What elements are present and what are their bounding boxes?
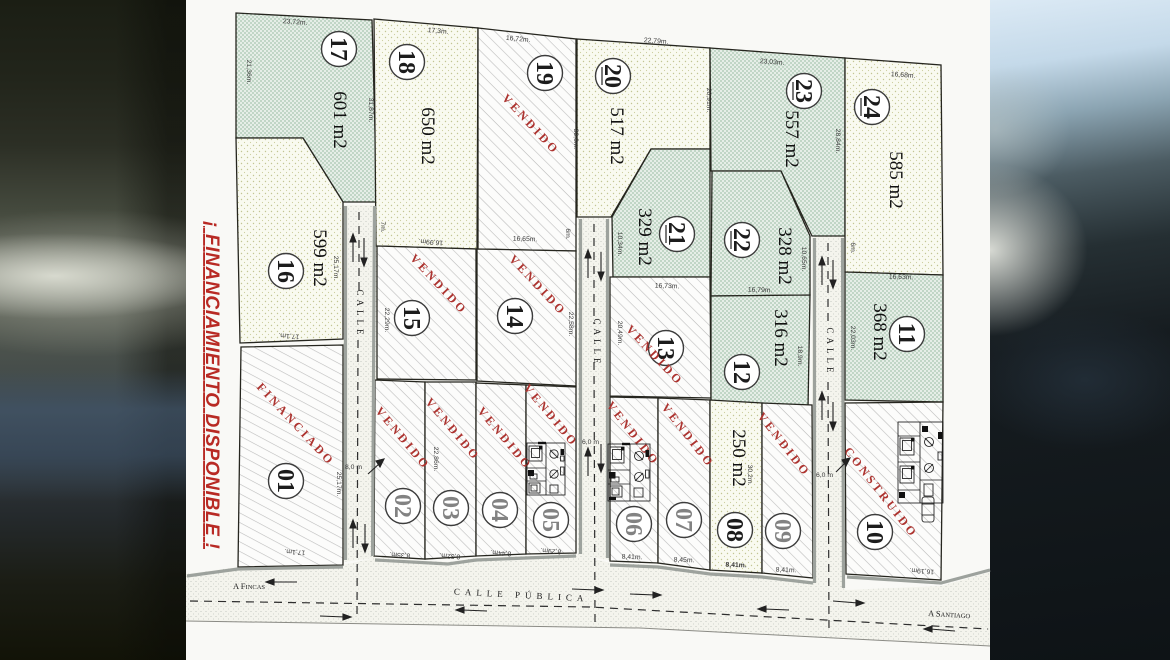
svg-text:22,29m.: 22,29m.: [383, 308, 390, 333]
svg-text:8,41m.: 8,41m.: [622, 554, 643, 562]
svg-text:17,1m.: 17,1m.: [284, 547, 305, 555]
svg-text:11: 11: [893, 323, 919, 346]
svg-text:20,49m.: 20,49m.: [616, 321, 623, 346]
svg-text:316 m2: 316 m2: [770, 309, 791, 367]
svg-text:10: 10: [861, 520, 887, 544]
svg-text:7m.: 7m.: [379, 221, 386, 232]
svg-text:10,34m.: 10,34m.: [616, 232, 623, 257]
svg-text:25,17m.: 25,17m.: [332, 256, 339, 281]
svg-text:20,91m.: 20,91m.: [705, 88, 712, 113]
svg-text:16: 16: [272, 259, 298, 283]
svg-text:15: 15: [398, 306, 424, 330]
svg-text:¡ FINANCIAMIENTO DISPONIBLE !: ¡ FINANCIAMIENTO DISPONIBLE !: [201, 221, 222, 549]
svg-text:19: 19: [531, 61, 557, 85]
svg-text:16,79m.: 16,79m.: [748, 287, 773, 295]
svg-text:16,73m.: 16,73m.: [655, 283, 680, 291]
svg-text:09: 09: [769, 519, 795, 543]
svg-text:16,65m.: 16,65m.: [513, 236, 538, 244]
svg-text:23: 23: [790, 79, 816, 103]
svg-text:650 m2: 650 m2: [417, 107, 438, 165]
svg-text:24: 24: [858, 95, 884, 119]
svg-text:8,32m.: 8,32m.: [439, 551, 460, 559]
svg-text:01: 01: [272, 469, 298, 493]
svg-text:557 m2: 557 m2: [781, 110, 802, 168]
svg-text:517 m2: 517 m2: [606, 107, 627, 165]
svg-text:8,45m.: 8,45m.: [674, 557, 695, 565]
svg-text:25,17m.: 25,17m.: [335, 472, 342, 497]
svg-text:04: 04: [486, 498, 512, 522]
svg-text:16,63m.: 16,63m.: [889, 274, 914, 282]
svg-text:8,41m.: 8,41m.: [725, 562, 747, 570]
svg-text:20: 20: [599, 64, 625, 88]
svg-text:8,35m.: 8,35m.: [389, 550, 410, 558]
svg-text:02: 02: [389, 494, 415, 518]
svg-text:6m.: 6m.: [849, 242, 856, 253]
svg-text:8,0 m: 8,0 m: [345, 464, 362, 471]
svg-text:18,9m.: 18,9m.: [796, 346, 803, 367]
svg-text:CALLE: CALLE: [355, 290, 365, 339]
svg-text:599 m2: 599 m2: [309, 229, 330, 287]
svg-text:05: 05: [537, 508, 563, 532]
svg-text:8,29m.: 8,29m.: [540, 546, 561, 554]
svg-text:6,0 m: 6,0 m: [816, 472, 833, 479]
svg-text:585 m2: 585 m2: [885, 151, 906, 209]
svg-text:17: 17: [325, 37, 351, 61]
svg-text:21,36m.: 21,36m.: [245, 60, 252, 85]
svg-text:22: 22: [728, 228, 754, 252]
svg-text:CALLE: CALLE: [825, 328, 835, 377]
svg-text:22,58m.: 22,58m.: [567, 312, 574, 337]
svg-text:30,2m.: 30,2m.: [746, 465, 753, 486]
svg-text:07: 07: [670, 508, 696, 532]
svg-text:8,44m.: 8,44m.: [490, 548, 511, 556]
svg-text:328 m2: 328 m2: [774, 227, 795, 285]
svg-text:31,87m.: 31,87m.: [367, 98, 374, 123]
svg-text:14: 14: [501, 304, 527, 328]
svg-text:368 m2: 368 m2: [869, 303, 890, 361]
svg-text:10,65m.: 10,65m.: [800, 247, 807, 272]
svg-text:08: 08: [721, 518, 747, 542]
svg-text:601 m2: 601 m2: [329, 91, 350, 149]
svg-text:18: 18: [393, 50, 419, 74]
svg-text:329 m2: 329 m2: [634, 208, 655, 266]
svg-text:03: 03: [437, 496, 463, 520]
svg-text:22,86m.: 22,86m.: [432, 447, 439, 472]
svg-text:21: 21: [663, 222, 689, 246]
svg-text:6,0 m: 6,0 m: [582, 439, 599, 446]
svg-text:6m.: 6m.: [564, 228, 571, 239]
svg-text:28,84m.: 28,84m.: [834, 129, 841, 154]
svg-text:06: 06: [620, 512, 646, 536]
svg-text:8,41m.: 8,41m.: [776, 567, 797, 575]
svg-text:17,1m.: 17,1m.: [278, 331, 299, 339]
svg-text:12: 12: [728, 360, 754, 384]
svg-text:22,03m.: 22,03m.: [849, 326, 856, 351]
svg-text:250 m2: 250 m2: [728, 429, 749, 487]
svg-text:30,6m.: 30,6m.: [572, 129, 579, 150]
svg-text:CALLE: CALLE: [592, 319, 602, 368]
